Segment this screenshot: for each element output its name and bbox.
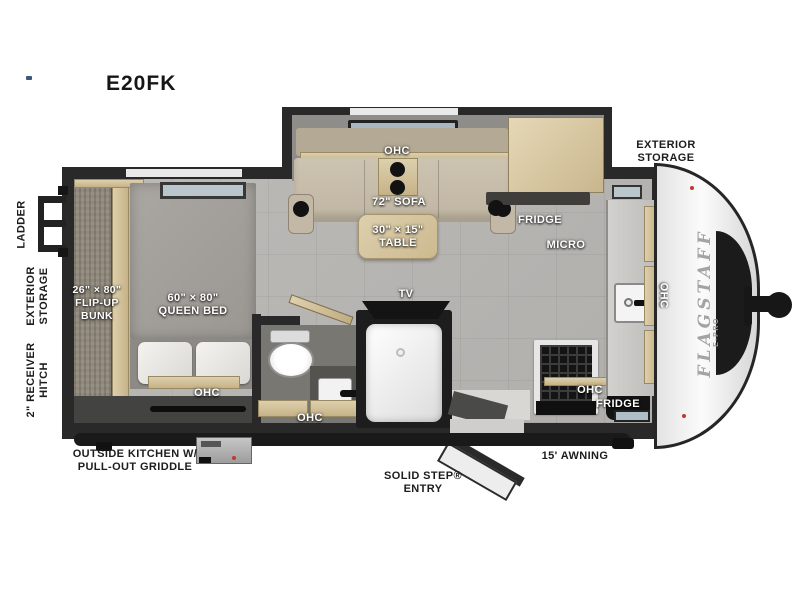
bed-label: 60" × 80" QUEEN BED bbox=[143, 292, 243, 318]
front-skylight bbox=[612, 185, 642, 199]
bunk-label: 26" × 80" FLIP-UP BUNK bbox=[57, 284, 137, 323]
cap-marker-bottom bbox=[682, 414, 686, 418]
shower-drain bbox=[396, 348, 405, 357]
front-storage-label: EXTERIOR STORAGE bbox=[616, 139, 716, 165]
outside-kitchen-label: OUTSIDE KITCHEN W/ PULL-OUT GRIDDLE bbox=[55, 448, 215, 474]
griddle-handle bbox=[150, 406, 246, 412]
rear-storage-label: EXTERIOR STORAGE bbox=[25, 256, 51, 336]
front-ohc-label: OHC bbox=[657, 274, 670, 318]
bed-ohc-label: OHC bbox=[182, 387, 232, 400]
ladder-icon bbox=[38, 196, 66, 252]
tv-unit bbox=[362, 301, 450, 319]
page-mark bbox=[26, 76, 32, 80]
bed-skylight bbox=[160, 182, 246, 199]
griddle-marker bbox=[232, 456, 236, 460]
bath-ohc-label: OHC bbox=[285, 412, 335, 425]
front-faucet-dot bbox=[624, 298, 633, 307]
kitchen-fridge-label: FRIDGE bbox=[583, 398, 653, 411]
rail-bracket-right bbox=[612, 438, 634, 449]
bath-top-wall bbox=[252, 316, 300, 325]
console-cupholder-1 bbox=[390, 162, 405, 177]
shower-tub bbox=[366, 324, 442, 422]
awning-label: 15' AWNING bbox=[530, 450, 620, 463]
floorplan-canvas: E20FK bbox=[0, 0, 800, 600]
toilet-bowl bbox=[268, 342, 314, 378]
brand-logo: FLAGSTAFF bbox=[695, 223, 715, 383]
counter-cupholder bbox=[488, 200, 504, 216]
fridge-upper-label: FRIDGE bbox=[505, 214, 575, 227]
page-title: E20FK bbox=[106, 72, 176, 96]
console-cupholder-2 bbox=[390, 180, 405, 195]
sofa-seat-seam-2 bbox=[438, 160, 439, 218]
brand-sub-logo: E-PRO bbox=[713, 307, 723, 357]
slide-ohc-label: OHC bbox=[372, 145, 422, 158]
cupholder-left bbox=[293, 201, 309, 217]
ladder-mount-bottom bbox=[58, 248, 68, 257]
hitch-coupler bbox=[766, 292, 792, 318]
fridge-cabinet bbox=[508, 117, 604, 193]
rear-wall-window bbox=[126, 169, 242, 177]
entry-side-window bbox=[614, 410, 650, 422]
kitchen-ohc-label: OHC bbox=[565, 384, 615, 397]
griddle-slot bbox=[201, 441, 221, 447]
sofa-seat-seam-1 bbox=[364, 160, 365, 218]
ladder-label: LADDER bbox=[16, 190, 29, 260]
awning-rail bbox=[74, 433, 630, 446]
entry-label: SOLID STEP® ENTRY bbox=[363, 470, 483, 496]
ladder-mount-top bbox=[58, 186, 68, 195]
micro-label: MICRO bbox=[531, 239, 601, 252]
hitch-label: 2" RECEIVER HITCH bbox=[25, 333, 51, 427]
table-label: 30" × 15" TABLE bbox=[358, 224, 438, 250]
cap-marker-top bbox=[690, 186, 694, 190]
tv-label: TV bbox=[386, 288, 426, 301]
sofa-label: 72" SOFA bbox=[349, 196, 449, 209]
